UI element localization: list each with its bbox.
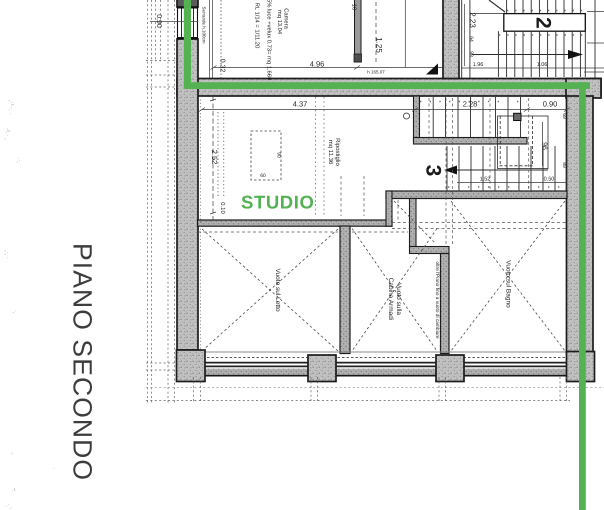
svg-text:·¹: ·¹ xyxy=(12,488,16,494)
svg-text:STUDIO: STUDIO xyxy=(241,192,315,213)
svg-text:Vuoto sul Letto: Vuoto sul Letto xyxy=(274,268,281,312)
svg-text:Camera: Camera xyxy=(283,8,290,29)
svg-text:mq 11.36: mq 11.36 xyxy=(327,140,334,165)
svg-text:2: 2 xyxy=(531,17,554,29)
svg-text:Cabina Armadi: Cabina Armadi xyxy=(387,278,394,321)
svg-text:69: 69 xyxy=(561,113,567,119)
svg-text:0.10: 0.10 xyxy=(219,202,226,214)
svg-text:·:: ·: xyxy=(10,451,14,457)
svg-text:1.25: 1.25 xyxy=(375,37,384,53)
svg-text:Vuoto sulla: Vuoto sulla xyxy=(395,283,402,315)
svg-text:Vuoto sul Bagno: Vuoto sul Bagno xyxy=(505,260,512,308)
svg-text:4.96: 4.96 xyxy=(310,60,325,69)
svg-text:oltre l'Piano fino a vuoto di: oltre l'Piano fino a vuoto di cambiare xyxy=(434,261,440,339)
svg-text:h 165.07: h 165.07 xyxy=(367,70,385,75)
svg-text:·: · xyxy=(53,466,55,472)
svg-text:·². · ¸: ·². · ¸ xyxy=(4,128,10,140)
svg-text:1.52: 1.52 xyxy=(480,177,491,183)
svg-text:.·˛: .·˛ xyxy=(16,158,22,163)
svg-text:98: 98 xyxy=(468,51,474,57)
svg-text:¸·˛ ·: ¸·˛ · xyxy=(4,250,10,259)
svg-text:2.23: 2.23 xyxy=(468,12,477,28)
svg-text:89: 89 xyxy=(561,162,567,168)
svg-text:mq 13.04: mq 13.04 xyxy=(276,10,283,35)
svg-text:RL 1/14 = 1/11.20: RL 1/14 = 1/11.20 xyxy=(254,3,261,49)
svg-text:4.37: 4.37 xyxy=(293,100,308,109)
svg-text:1.06: 1.06 xyxy=(537,62,548,68)
svg-text:96: 96 xyxy=(541,142,548,150)
svg-text:85% luce +velux 0.73= mq 1.660: 85% luce +velux 0.73= mq 1.660 xyxy=(266,0,273,80)
svg-text:0.90: 0.90 xyxy=(155,14,162,28)
svg-text:˛·¹··¸ .: ˛·¹··¸ . xyxy=(8,100,14,115)
svg-text:2.28: 2.28 xyxy=(463,100,478,109)
svg-text:·˙‚: ·˙‚ xyxy=(6,504,11,510)
svg-text:90: 90 xyxy=(276,152,282,158)
svg-text:10: 10 xyxy=(351,4,358,11)
svg-text:0.50: 0.50 xyxy=(544,177,555,183)
svg-text:1.96: 1.96 xyxy=(473,62,484,68)
svg-text:0.90: 0.90 xyxy=(543,100,558,109)
svg-text:64: 64 xyxy=(468,36,474,42)
svg-text:3: 3 xyxy=(421,165,444,177)
svg-text:60: 60 xyxy=(260,173,266,179)
svg-text:Ripostiglio: Ripostiglio xyxy=(334,138,341,166)
svg-text:·¸: ·¸ xyxy=(12,310,18,314)
svg-text:0.32: 0.32 xyxy=(219,59,226,73)
svg-text:PIANO SECONDO: PIANO SECONDO xyxy=(68,243,98,481)
svg-text:Serrande h.100cm: Serrande h.100cm xyxy=(202,6,207,43)
svg-text:2.52: 2.52 xyxy=(210,150,219,165)
